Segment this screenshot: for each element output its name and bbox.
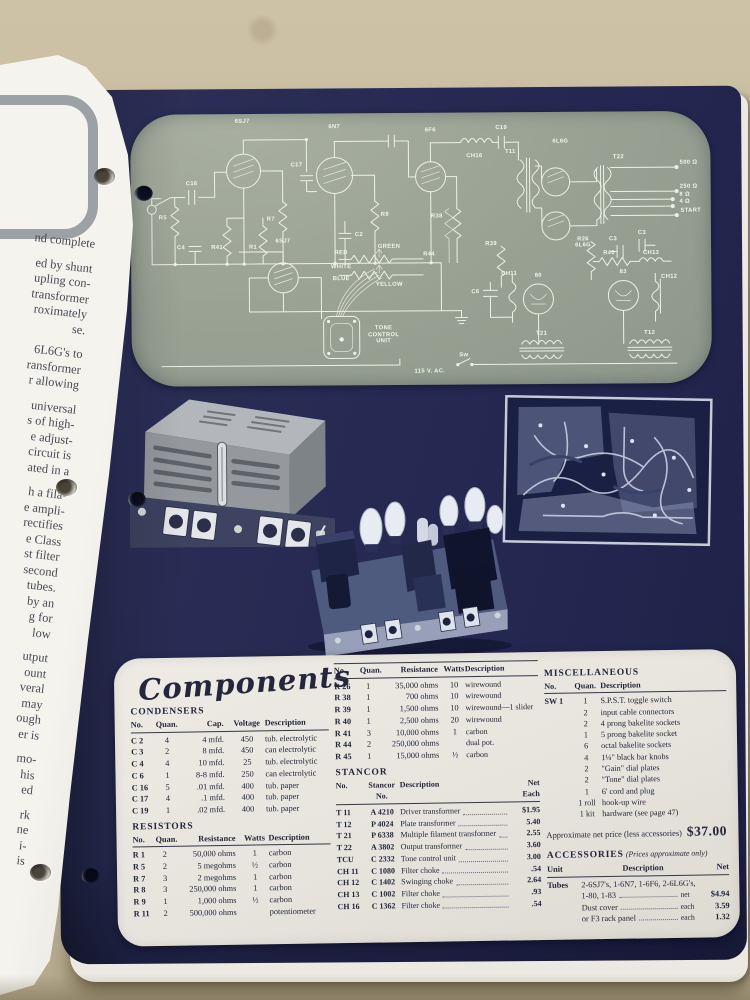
schematic-label: T12 (644, 330, 655, 337)
schematic-label: 250 Ω (680, 184, 698, 191)
schematic-label: R5 (159, 215, 167, 222)
miscellaneous-table: No.Quan.DescriptionSW 11S.P.S.T. toggle … (544, 678, 728, 820)
schematic-labels: 6SJ76N76F66L6G6SJ76L6G8083T11T22T21T12CH… (130, 111, 712, 387)
schematic-label: R1 (249, 245, 257, 252)
schematic-label: R44 (423, 251, 435, 258)
miscellaneous-title: MISCELLANEOUS (544, 666, 726, 679)
schematic-label: START (680, 208, 701, 215)
components-column-1: Components CONDENSERS No.Quan.Cap.Voltag… (130, 665, 332, 920)
schematic-label: R8 (381, 212, 389, 219)
schematic-label: T22 (613, 154, 624, 161)
chassis-underside-photo (502, 395, 713, 547)
schematic-label: 6SJ7 (235, 119, 250, 126)
components-column-3: MISCELLANEOUS No.Quan.DescriptionSW 11S.… (544, 661, 730, 925)
chassis-top-photo (297, 477, 521, 657)
schematic-label: C4 (177, 245, 185, 252)
punch-hole (81, 868, 99, 883)
schematic-label: C16 (186, 181, 198, 188)
schematic-label: R38 (431, 213, 443, 220)
schematic-label: GREEN (378, 244, 400, 251)
schematic-label: YELLOW (376, 282, 403, 289)
schematic-label: C19 (495, 125, 507, 132)
table-row: C 191.02 mfd.400tub. paper (132, 802, 330, 817)
schematic-label: 6F6 (425, 127, 436, 134)
schematic-label: R39 (485, 241, 497, 248)
table-header: No.Stancor No.DescriptionNet Each (336, 777, 540, 806)
accessories-note: (Prices approximate only) (626, 848, 708, 858)
schematic-label: 6L6G (552, 139, 568, 146)
schematic-label: C3 (638, 230, 646, 237)
schematic-label: 115 V. AC. (415, 368, 446, 375)
accessories-section: ACCESSORIES (Prices approximate only) Un… (547, 847, 730, 926)
components-column-2: No.Quan.ResistanceWattsDescriptionR 2613… (334, 660, 542, 913)
schematic-label: 6N7 (328, 124, 340, 131)
accessories-rows: Tubes2-6SJ7's, 1-6N7, 1-6F6, 2-6L6G's,1-… (547, 877, 730, 926)
net-price-note: Approximate net price (less accessories) (546, 828, 681, 839)
schematic-label: C17 (291, 162, 303, 169)
stancor-table: No.Stancor No.DescriptionNet EachT 11A 4… (336, 777, 542, 913)
schematic-label: Sw (459, 352, 468, 359)
schematic-label: R41 (211, 245, 223, 252)
resistors-continued-table: No.Quan.ResistanceWattsDescriptionR 2613… (334, 660, 540, 763)
schematic-label: WHITE (331, 264, 351, 271)
schematic-label: R7 (267, 217, 275, 224)
resistors-title: RESISTORS (132, 819, 330, 832)
schematic-label: 4 Ω (679, 199, 690, 206)
schematic-label: BLUE (333, 276, 350, 283)
accessory-row: or F3 rack paneleach1.32 (548, 911, 730, 925)
schematic-label: CH13 (643, 250, 659, 257)
schematic-label: T11 (505, 149, 516, 156)
schematic-label: 80 (535, 273, 542, 280)
schematic-label: C6 (471, 289, 479, 296)
punch-hole (128, 492, 146, 507)
table-row: R 112500,000 ohmspotentiometer (134, 905, 332, 920)
punch-hole (30, 864, 51, 881)
table-row: 1 kithardware (see page 47) (546, 806, 728, 820)
catalog-page: 6SJ76N76F66L6G6SJ76L6G8083T11T22T21T12CH… (55, 86, 747, 965)
schematic-label: 500 Ω (680, 160, 698, 167)
components-panel: Components CONDENSERS No.Quan.Cap.Voltag… (114, 649, 740, 947)
punch-hole (56, 479, 77, 496)
resistors-table: No.Quan.ResistanceWattsDescriptionR 1250… (132, 831, 331, 920)
schematic-label: 8 Ω (679, 192, 690, 199)
table-header: No.Quan.ResistanceWattsDescription (334, 660, 538, 679)
schematic-label: 83 (620, 269, 627, 276)
net-price-value: $37.00 (687, 823, 727, 840)
schematic-label: T21 (536, 331, 547, 338)
table-row: CH 16C 1362Filter choke.54 (338, 898, 542, 913)
schematic-label: C2 (355, 232, 363, 239)
punch-hole (135, 186, 153, 201)
schematic-label: RED (334, 250, 347, 257)
table-header: No.Quan.Cap.VoltageDescription (131, 716, 329, 733)
accessories-header: Unit Description Net (547, 861, 729, 877)
punch-hole (94, 168, 115, 185)
schematic-label: R40 (603, 250, 615, 257)
schematic-panel: 6SJ76N76F66L6G6SJ76L6G8083T11T22T21T12CH… (130, 111, 712, 387)
schematic-label: CH11 (501, 271, 517, 278)
table-row: R 45115,000 ohms½carbon (335, 748, 539, 763)
schematic-label: 6L6G (575, 242, 591, 249)
schematic-label: TONE CONTROL UNIT (368, 325, 399, 345)
schematic-label: C3 (609, 236, 617, 243)
accessories-title: ACCESSORIES (547, 849, 624, 860)
condensers-table: No.Quan.Cap.VoltageDescriptionC 244 mfd.… (131, 716, 331, 817)
schematic-label: R26 (577, 236, 589, 243)
condensers-title: CONDENSERS (130, 704, 328, 717)
accessory-row: Tubes2-6SJ7's, 1-6N7, 1-6F6, 2-6L6G's,1-… (547, 877, 729, 903)
table-header: No.Quan.Description (544, 678, 726, 694)
components-title: Components (137, 660, 329, 707)
schematic-label: CH16 (466, 153, 482, 160)
stancor-title: STANCOR (335, 765, 539, 778)
schematic-label: 6SJ7 (276, 238, 291, 245)
net-price-line: Approximate net price (less accessories)… (546, 823, 728, 842)
schematic-label: CH12 (661, 274, 677, 281)
rounded-outline-graphic (0, 95, 98, 239)
table-header: No.Quan.ResistanceWattsDescription (132, 831, 330, 848)
